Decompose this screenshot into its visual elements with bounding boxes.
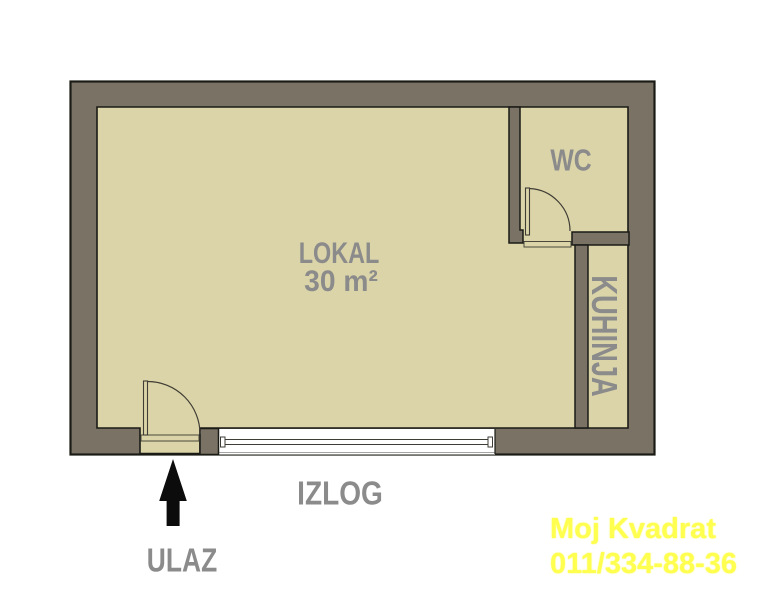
room-area-lokal-text: 30 m²: [304, 267, 378, 297]
watermark: Moj Kvadrat 011/334-88-36: [550, 512, 737, 582]
window-left-pier: [200, 429, 219, 455]
shop-window-glass: [224, 440, 489, 445]
room-label-wc: WC: [545, 145, 597, 176]
watermark-phone: 011/334-88-36: [550, 547, 737, 582]
entrance-door-leaf: [144, 381, 148, 435]
watermark-brand: Moj Kvadrat: [550, 512, 737, 547]
shop-window-left-cap: [221, 437, 226, 447]
shop-window-right-cap: [488, 437, 493, 447]
entrance-label-ulaz-text: ULAZ: [147, 544, 217, 577]
floorplan-canvas: LOKAL 30 m² WC KUHINJA IZLOG ULAZ Moj Kv…: [0, 0, 766, 600]
floorplan-drawing: [0, 0, 766, 600]
room-label-kuhinja: KUHINJA: [586, 256, 622, 416]
room-area-lokal: 30 m²: [302, 267, 380, 297]
wc-bottom-wall: [572, 232, 629, 245]
window-label-izlog-text: IZLOG: [297, 477, 383, 510]
window-label-izlog: IZLOG: [290, 477, 391, 510]
entrance-arrow-icon: [159, 459, 187, 526]
wc-door-leaf: [526, 188, 530, 235]
entrance-label-ulaz: ULAZ: [138, 544, 226, 577]
room-label-wc-text: WC: [550, 145, 591, 176]
room-label-kuhinja-text: KUHINJA: [586, 275, 622, 397]
